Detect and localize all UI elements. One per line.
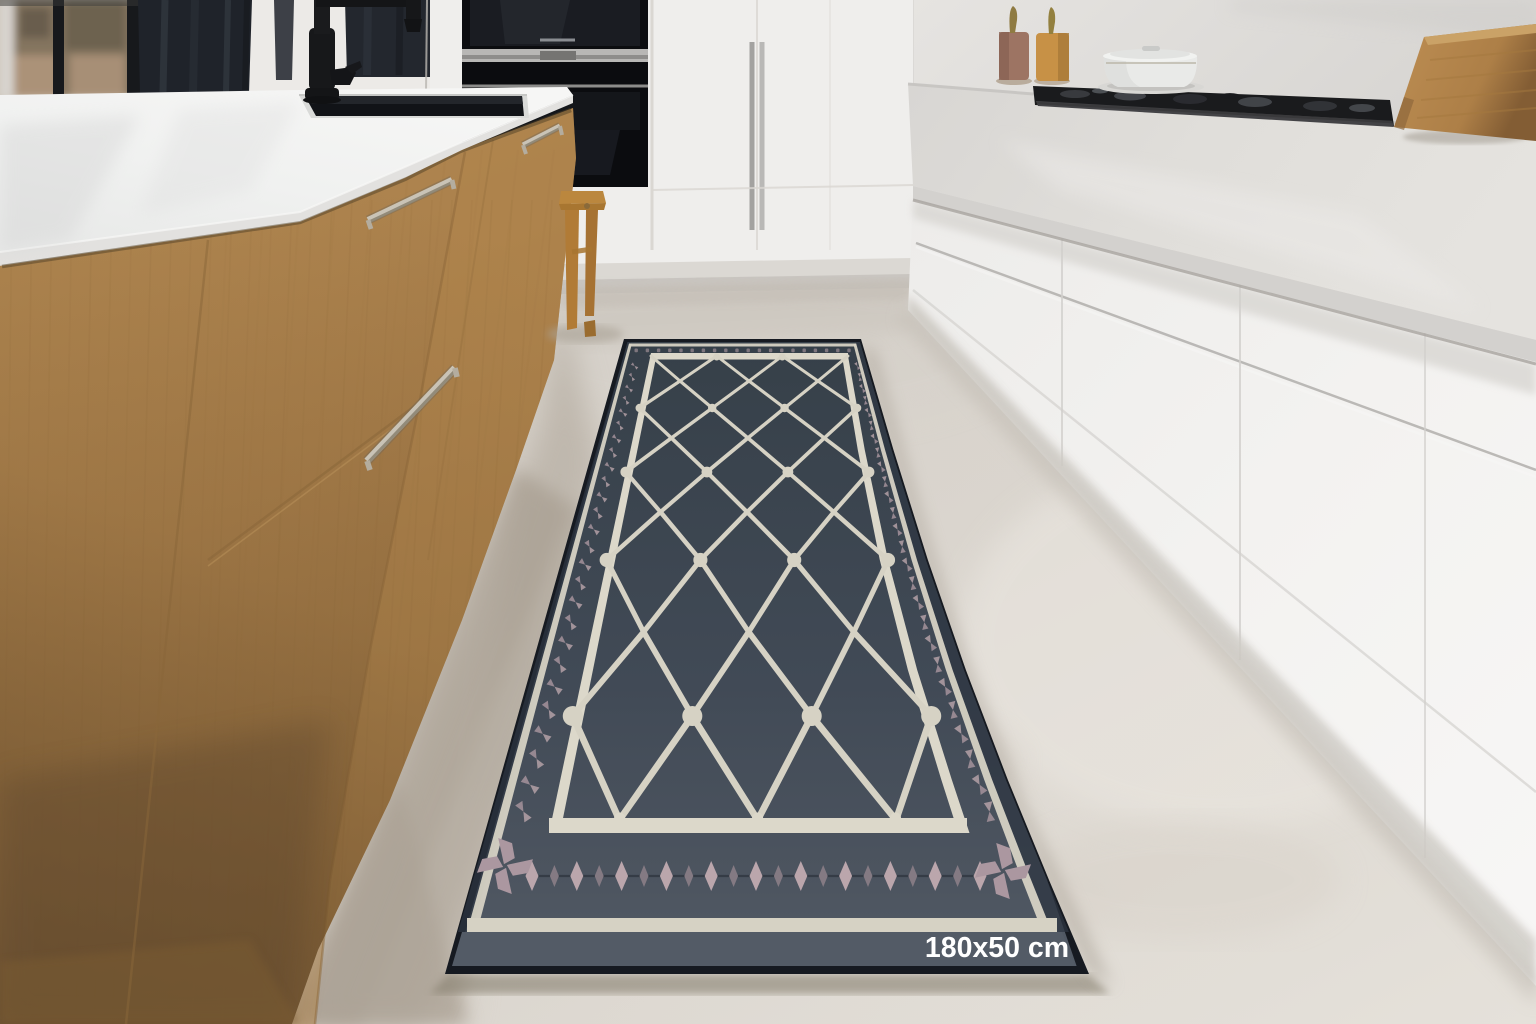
svg-text:180x50 cm: 180x50 cm bbox=[925, 932, 1069, 964]
